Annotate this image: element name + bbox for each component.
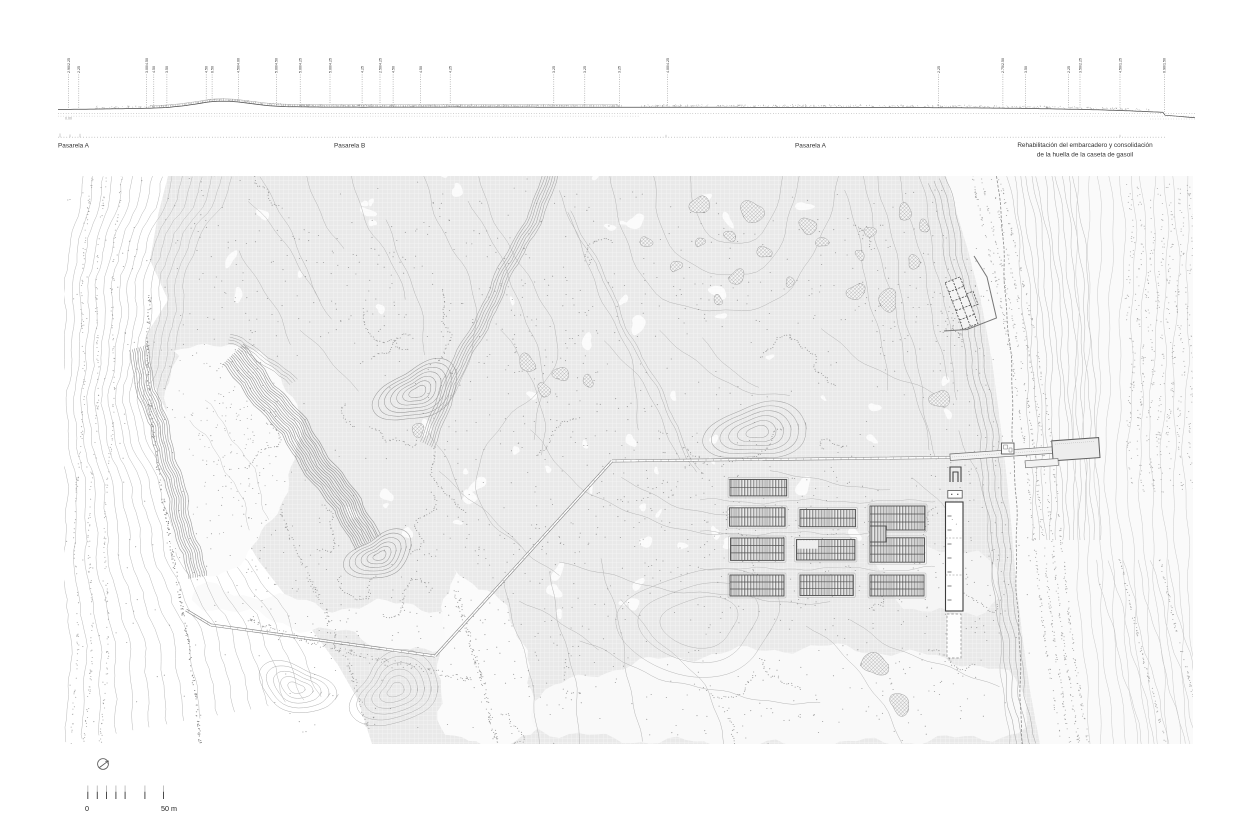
svg-text:de la huella de la caseta de g: de la huella de la caseta de gasoil xyxy=(1037,152,1133,159)
svg-text:5.00/4.25: 5.00/4.25 xyxy=(299,58,303,73)
svg-text:3.25: 3.25 xyxy=(552,66,556,73)
svg-text:5.00/4.25: 5.00/4.25 xyxy=(328,58,332,73)
svg-text:Rehabilitación del embarcadero: Rehabilitación del embarcadero y consoli… xyxy=(1017,142,1153,149)
svg-text:4.25: 4.25 xyxy=(360,66,364,73)
svg-text:3.50: 3.50 xyxy=(1024,66,1028,73)
svg-text:0.00: 0.00 xyxy=(65,117,72,121)
svg-text:4.50: 4.50 xyxy=(419,66,423,73)
svg-text:3.00/4.50: 3.00/4.50 xyxy=(145,58,149,73)
svg-text:3.25: 3.25 xyxy=(583,66,587,73)
svg-text:2.25: 2.25 xyxy=(1067,66,1071,73)
svg-text:3.50: 3.50 xyxy=(165,66,169,73)
svg-text:3.25: 3.25 xyxy=(618,66,622,73)
svg-text:2.25: 2.25 xyxy=(77,66,81,73)
svg-text:4.25: 4.25 xyxy=(449,66,453,73)
svg-text:2.25: 2.25 xyxy=(937,66,941,73)
svg-text:4.50/4.00: 4.50/4.00 xyxy=(237,58,241,73)
svg-text:50 m: 50 m xyxy=(161,804,177,813)
svg-text:4.50: 4.50 xyxy=(391,66,395,73)
svg-text:6.50: 6.50 xyxy=(210,66,214,73)
svg-text:4.50: 4.50 xyxy=(205,66,209,73)
svg-text:5.00/4.50: 5.00/4.50 xyxy=(275,58,279,73)
svg-text:0.90/1.50: 0.90/1.50 xyxy=(1163,58,1167,73)
svg-text:Pasarela B: Pasarela B xyxy=(334,143,365,150)
svg-text:0: 0 xyxy=(85,804,89,813)
svg-text:Pasarela A: Pasarela A xyxy=(58,143,90,150)
svg-text:4.50: 4.50 xyxy=(152,66,156,73)
svg-text:4.00/4.25: 4.00/4.25 xyxy=(666,58,670,73)
svg-text:3.50/2.25: 3.50/2.25 xyxy=(1078,58,1082,73)
svg-text:2.75/2.50: 2.75/2.50 xyxy=(1001,58,1005,73)
svg-text:4.50/1.25: 4.50/1.25 xyxy=(1118,58,1122,73)
svg-text:Pasarela A: Pasarela A xyxy=(795,143,827,150)
svg-text:2.50/4.25: 2.50/4.25 xyxy=(378,58,382,73)
svg-text:2.90/2.25: 2.90/2.25 xyxy=(67,58,71,73)
